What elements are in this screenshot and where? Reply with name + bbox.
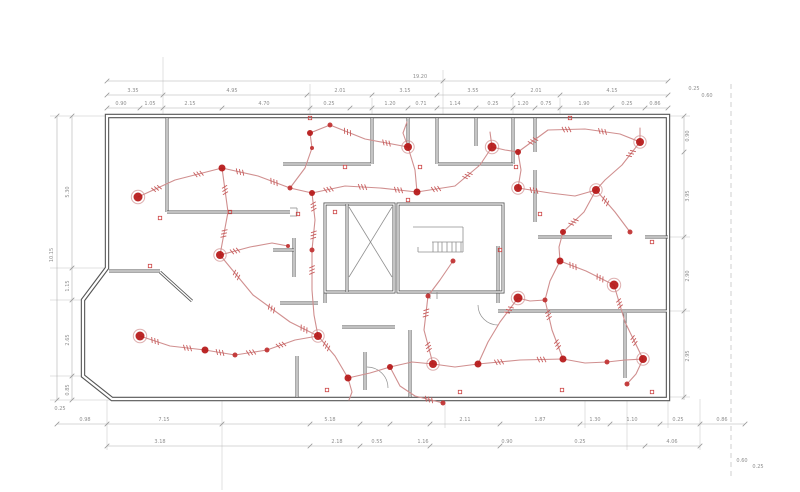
junction-dot — [286, 244, 290, 248]
junction-dot — [314, 332, 322, 340]
dimension-label: 0.86 — [716, 417, 727, 423]
dimension-label: 4.95 — [226, 88, 237, 94]
dimension-label: 1.15 — [65, 280, 71, 291]
dimension-label: 0.25 — [752, 464, 763, 470]
junction-dot — [605, 360, 610, 365]
junction-dot — [328, 123, 333, 128]
dimension-label: 1.20 — [384, 101, 395, 107]
dimension-label: 1.16 — [417, 439, 428, 445]
junction-dot — [475, 361, 482, 368]
junction-dot — [288, 186, 293, 191]
junction-dot — [592, 186, 600, 194]
wire-path — [417, 147, 492, 192]
junction-dot — [514, 184, 522, 192]
dimension-label: 2.11 — [459, 417, 470, 423]
dimension-label: 3.15 — [399, 88, 410, 94]
device-symbol — [158, 216, 161, 219]
wire-path — [596, 142, 640, 190]
dimension-label: 0.90 — [115, 101, 126, 107]
wire-path — [267, 336, 318, 350]
wire-hash — [236, 168, 237, 174]
junction-dot — [134, 193, 143, 202]
junction-dot — [560, 229, 566, 235]
device-symbol — [418, 165, 421, 168]
dimension-label: 1.20 — [517, 101, 528, 107]
dimension-label: 0.25 — [574, 439, 585, 445]
wire-path — [545, 261, 560, 300]
floor-plan-drawing: 19.203.354.952.013.153.552.014.150.901.0… — [0, 0, 800, 492]
junction-dot — [426, 294, 431, 299]
wire-path — [563, 359, 607, 363]
dimension-label: 3.95 — [685, 190, 691, 201]
dimension-label: 1.14 — [449, 101, 460, 107]
junction-dot — [310, 248, 315, 253]
wire-hash — [573, 219, 579, 221]
junction-dot — [625, 382, 630, 387]
dimension-label: 4.06 — [666, 439, 677, 445]
junction-dot — [441, 401, 446, 406]
junction-dot — [309, 190, 315, 196]
wire-path — [478, 359, 563, 364]
junction-dot — [216, 251, 224, 259]
wire-hash — [151, 188, 156, 192]
dimension-label: 3.55 — [467, 88, 478, 94]
dimension-label: 7.15 — [158, 417, 169, 423]
outer-wall-core — [83, 116, 668, 399]
junction-dot — [404, 143, 412, 151]
core-wall — [398, 204, 503, 292]
door-arc — [367, 367, 388, 388]
junction-dot — [307, 130, 313, 136]
wire-path — [348, 367, 390, 378]
dimension-label: 10.15 — [49, 248, 55, 262]
dimension-label: 0.60 — [701, 93, 712, 99]
device-symbol — [650, 240, 653, 243]
junction-dot — [560, 356, 567, 363]
dimension-label: 0.90 — [685, 130, 691, 141]
junction-dot — [310, 146, 314, 150]
wire-hash — [602, 196, 605, 201]
dimension-label: 1.87 — [534, 417, 545, 423]
interior-wall-core — [160, 272, 192, 301]
dimension-label: 3.35 — [127, 88, 138, 94]
core-wall — [325, 204, 394, 292]
wire-hash — [154, 187, 159, 191]
device-symbol — [325, 388, 328, 391]
device-symbol — [650, 390, 653, 393]
wire-hash — [157, 185, 162, 189]
wire-hash — [606, 201, 609, 206]
dimension-label: 2.01 — [530, 88, 541, 94]
junction-dot — [345, 375, 352, 382]
dimension-label: 0.25 — [323, 101, 334, 107]
dimension-label: 2.18 — [331, 439, 342, 445]
junction-dot — [628, 230, 633, 235]
junction-dot — [136, 332, 145, 341]
junction-dot — [543, 298, 548, 303]
wire-hash — [155, 338, 156, 344]
dimension-label: 0.98 — [79, 417, 90, 423]
junction-dot — [488, 143, 497, 152]
wire-path — [138, 168, 222, 197]
dimension-label: 1.05 — [144, 101, 155, 107]
wire-path — [140, 336, 205, 350]
wire-path — [310, 125, 330, 133]
junction-dot — [514, 294, 523, 303]
junction-dot — [219, 165, 226, 172]
wire-path — [290, 133, 312, 188]
wire-path — [222, 168, 312, 193]
junction-dot — [636, 138, 644, 146]
dimension-label: 1.90 — [578, 101, 589, 107]
wire-hash — [239, 169, 240, 175]
dimension-label: 0.55 — [371, 439, 382, 445]
junction-dot — [414, 189, 421, 196]
core-wall-core — [325, 204, 394, 292]
dimension-label: 0.25 — [621, 101, 632, 107]
wire-hash — [243, 170, 244, 176]
floor-plan-page: 19.203.354.952.013.153.552.014.150.901.0… — [0, 0, 800, 492]
outer-wall — [83, 116, 668, 399]
wire-path — [614, 285, 643, 359]
dimension-label: 0.25 — [672, 417, 683, 423]
wire-hash — [158, 339, 159, 345]
dimension-label: 4.15 — [606, 88, 617, 94]
device-symbol — [343, 165, 346, 168]
wire-hash — [571, 221, 577, 223]
device-symbol — [333, 210, 336, 213]
wire-hash — [268, 304, 269, 310]
device-symbol — [560, 388, 563, 391]
wire-path — [330, 125, 408, 147]
dimension-label: 2.65 — [65, 334, 71, 345]
junction-dot — [639, 355, 647, 363]
wire-path — [560, 261, 614, 285]
junction-dot — [515, 149, 521, 155]
junction-dot — [233, 353, 238, 358]
device-symbol — [458, 390, 461, 393]
door-arc — [478, 305, 498, 325]
device-symbol — [148, 264, 151, 267]
wire-path — [408, 147, 417, 192]
wire-hash — [568, 223, 574, 225]
dimension-label: 0.25 — [487, 101, 498, 107]
wire-hash — [273, 307, 274, 313]
dimension-label: 2.95 — [685, 350, 691, 361]
core-wall-core — [398, 204, 503, 292]
dimension-label: 1.10 — [626, 417, 637, 423]
junction-dot — [610, 281, 619, 290]
dimension-label: 0.25 — [54, 406, 65, 412]
wire-path — [627, 359, 643, 384]
junction-dot — [451, 259, 456, 264]
junction-dot — [265, 348, 270, 353]
junction-dot — [429, 360, 437, 368]
wire-path — [318, 336, 348, 378]
dimension-label: 0.90 — [501, 439, 512, 445]
dimension-label: 4.70 — [258, 101, 269, 107]
junction-dot — [557, 258, 564, 265]
wire-path — [596, 190, 630, 232]
device-symbol — [538, 212, 541, 215]
extension-lines-layer — [50, 57, 700, 490]
dimension-label: 0.71 — [415, 101, 426, 107]
dimension-label: 2.90 — [685, 270, 691, 281]
dimension-label: 3.18 — [154, 439, 165, 445]
wire-path — [433, 364, 478, 367]
dimension-label: 0.85 — [65, 384, 71, 395]
dimension-label: 5.30 — [65, 186, 71, 197]
wire-hash — [152, 337, 153, 343]
dimension-label: 0.86 — [649, 101, 660, 107]
walls-layer — [83, 116, 668, 399]
wire-hash — [271, 306, 272, 312]
junction-dot — [202, 347, 209, 354]
wire-path — [220, 255, 318, 336]
device-symbol — [406, 198, 409, 201]
wire-hash — [604, 198, 607, 203]
dimension-label: 2.15 — [184, 101, 195, 107]
dimension-label: 5.18 — [324, 417, 335, 423]
dimensions-layer: 19.203.354.952.013.153.552.014.150.901.0… — [49, 74, 764, 478]
wire-path — [545, 300, 563, 359]
device-symbol — [514, 165, 517, 168]
wire-path — [563, 190, 596, 232]
dimension-label: 0.75 — [540, 101, 551, 107]
junction-dot — [387, 364, 393, 370]
dimension-label: 0.60 — [736, 458, 747, 464]
dimension-label: 0.25 — [688, 86, 699, 92]
wire-path — [312, 193, 318, 336]
dimension-label: 2.01 — [334, 88, 345, 94]
wire-path — [518, 188, 596, 196]
dimension-label: 19.20 — [413, 74, 427, 80]
dimension-label: 1.30 — [589, 417, 600, 423]
